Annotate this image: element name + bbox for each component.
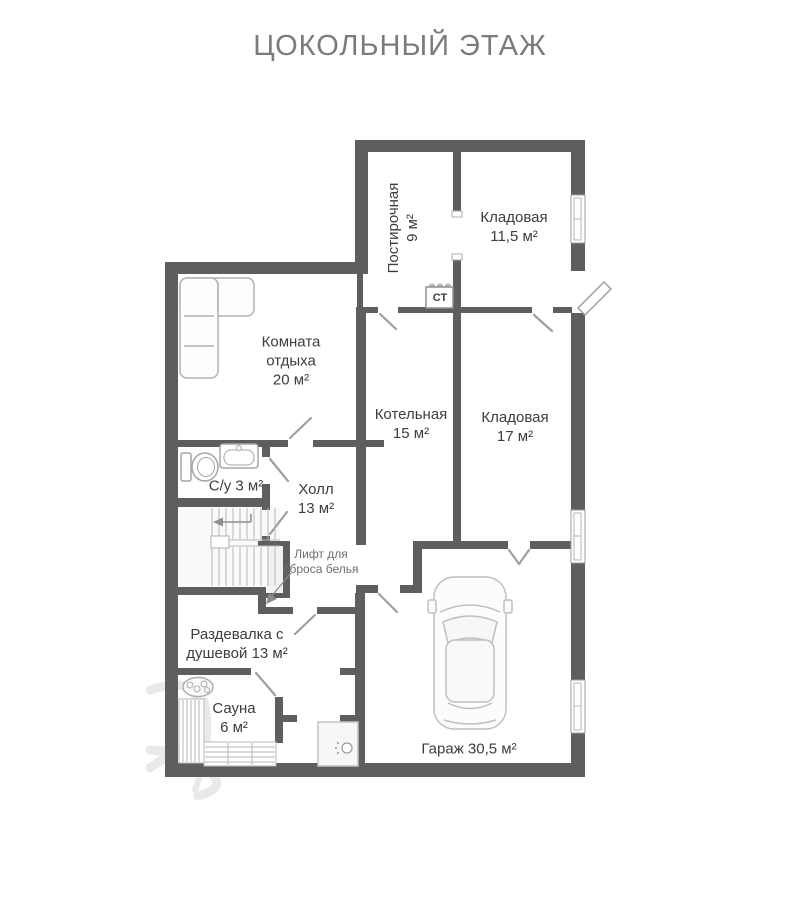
- opening-jambs: [452, 211, 462, 260]
- door-leaf: [379, 594, 397, 612]
- sink: [220, 444, 258, 468]
- room-label-komnata-otdyha: Комната отдыха 20 м²: [262, 333, 321, 390]
- shower-cabin: [318, 722, 358, 766]
- room-label-kladovaya-11-5: Кладовая 11,5 м²: [480, 208, 547, 246]
- room-label-kladovaya-17: Кладовая 17 м²: [481, 408, 548, 446]
- window: [571, 680, 585, 733]
- door-leaf: [270, 459, 288, 481]
- door-leaf: [509, 550, 519, 564]
- floor-plan-page: ЦОКОЛЬНЫЙ ЭТАЖ: [0, 0, 800, 900]
- car: [428, 577, 512, 729]
- sofa: [180, 278, 254, 378]
- door-leaf: [380, 314, 396, 329]
- room-label-holl: Холл 13 м²: [298, 480, 334, 518]
- room-label-garage: Гараж 30,5 м²: [421, 740, 516, 759]
- room-label-razdevalka: Раздевалка с душевой 13 м²: [186, 625, 287, 663]
- exterior-door-leaf: [578, 282, 611, 315]
- door-leaf: [519, 550, 529, 564]
- room-label-postirochnaya: Постирочная 9 м²: [384, 183, 422, 274]
- door-leaf: [295, 615, 315, 634]
- room-label-sanuzel: С/у 3 м²: [209, 477, 264, 496]
- door-leaf: [534, 315, 552, 331]
- floor-plan-drawing: [0, 0, 800, 900]
- window: [571, 510, 585, 563]
- door-leaf: [290, 418, 311, 438]
- floor-plan: Постирочная 9 м² Кладовая 11,5 м² Комнат…: [0, 0, 800, 900]
- window: [571, 195, 585, 243]
- room-label-sauna: Сауна 6 м²: [212, 699, 255, 737]
- room-label-kotelnaya: Котельная 15 м²: [375, 405, 448, 443]
- door-leaf: [256, 673, 275, 695]
- laundry-chute-label: Лифт для сброса белья: [284, 547, 359, 577]
- sauna-heater: [183, 678, 213, 697]
- ct-label: СТ: [433, 292, 447, 304]
